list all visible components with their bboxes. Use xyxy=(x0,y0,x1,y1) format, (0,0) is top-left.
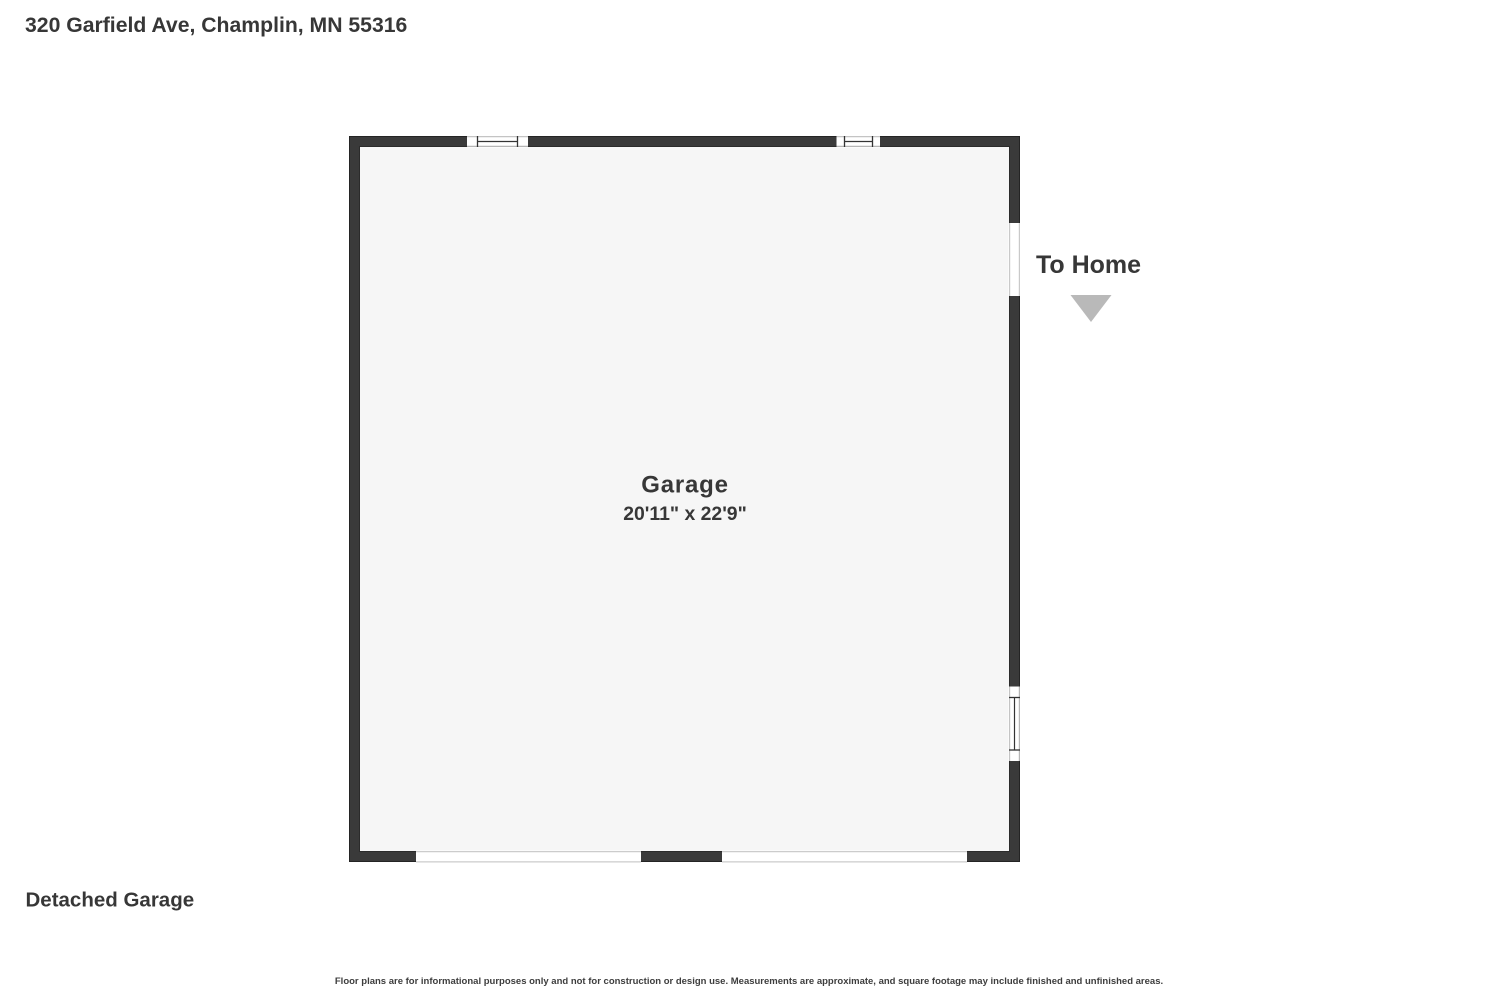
svg-text:To Home: To Home xyxy=(1036,251,1141,279)
svg-text:320 Garfield Ave, Champlin, MN: 320 Garfield Ave, Champlin, MN 55316 xyxy=(25,14,408,37)
svg-text:Garage: Garage xyxy=(641,472,729,499)
svg-text:20'11" x 22'9": 20'11" x 22'9" xyxy=(623,503,747,525)
svg-text:Detached Garage: Detached Garage xyxy=(26,889,195,912)
svg-text:Floor plans are for informatio: Floor plans are for informational purpos… xyxy=(335,976,1163,987)
